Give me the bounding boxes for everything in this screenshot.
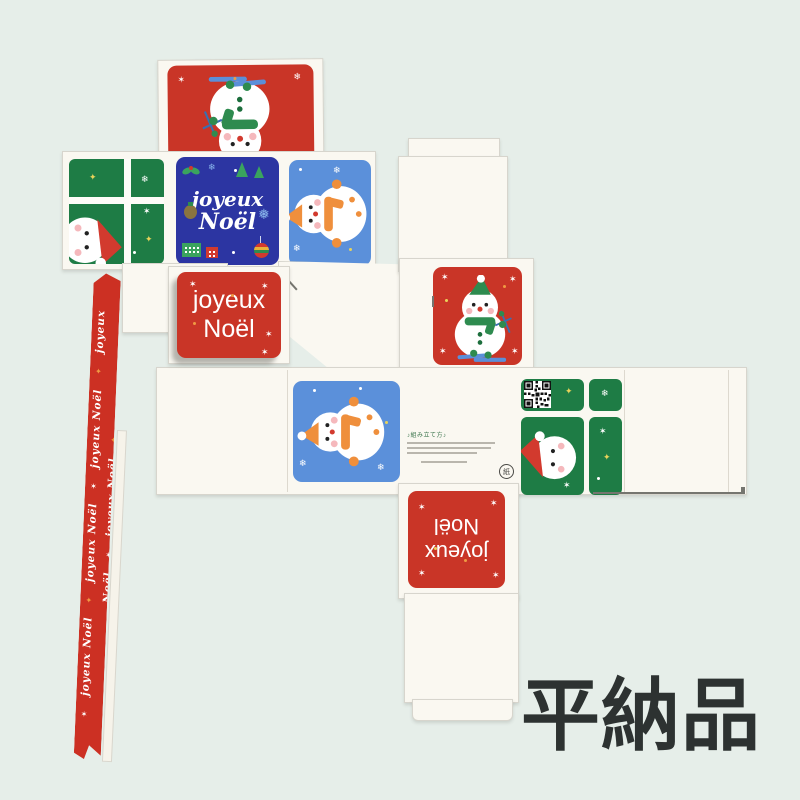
ribbon-phrase: joyeux Noël xyxy=(79,617,94,697)
sans-line1: joyeux xyxy=(425,540,489,566)
star-icon: ✦ xyxy=(565,387,573,396)
snowflake-icon: ❅ xyxy=(258,207,270,221)
assembly-instructions: ♪組み立て方♪ xyxy=(407,430,502,463)
flat-pack-label: 平納品 xyxy=(521,676,761,755)
joyeux-noel-flap-red: joyeux Noël ✶ ✶ ✶ ✶ xyxy=(177,272,281,358)
gift-cell: ❄ xyxy=(589,379,622,411)
recycle-mark-glyph: 紙 xyxy=(503,467,510,477)
left-box-front-row: ✦ ❄ ✶ ✦ joyeux Noël ❄ ❅ xyxy=(62,151,376,270)
santa-face xyxy=(69,207,127,264)
right-box-middle-band: ❄ ❄ ♪組み立て方♪ 紙 ✦ xyxy=(156,367,747,495)
recycle-mark-icon: 紙 xyxy=(499,464,514,479)
tree-icon xyxy=(236,162,248,177)
ribbon-star-icon: ✶ xyxy=(89,481,98,490)
script-line2: Noël xyxy=(199,210,256,234)
gift-cell: ✦ xyxy=(521,379,584,411)
snowflake-icon: ❄ xyxy=(333,166,341,175)
orange-dot xyxy=(231,294,234,297)
house-icon xyxy=(206,247,218,258)
yellow-dot xyxy=(385,421,388,424)
tree-icon xyxy=(254,166,264,178)
gift-panel-green-group: ✦ ❄ ✶ ✶ ✦ xyxy=(521,379,622,495)
right-box-bottom-face: joyeux Noël ✶ ✶ ✶ ✶ xyxy=(398,483,519,599)
instructions-heading-text: 組み立て方 xyxy=(411,433,444,439)
yellow-dot xyxy=(445,299,448,302)
flat-pack-photo: ✶joyeux Noël✦joyeux Noël✶joyeux Noël✦joy… xyxy=(0,0,800,800)
snowflake-icon: ❄ xyxy=(208,163,216,172)
ornament-icon xyxy=(184,205,197,219)
snowman-panel-red: ✶ ✶ ✶ ✶ xyxy=(433,267,522,365)
ribbon-phrase: joyeux Noël xyxy=(89,388,104,468)
white-dot xyxy=(93,255,96,258)
snowflake-icon: ✶ xyxy=(599,427,607,436)
cut-shadow xyxy=(593,492,745,494)
right-box-top-flap xyxy=(398,156,508,272)
joyeux-noel-panel-red-flipped: joyeux Noël ✶ ✶ ✶ ✶ xyxy=(408,491,505,588)
snowflake-icon: ✶ xyxy=(418,503,426,512)
orange-dot xyxy=(464,559,467,562)
left-box-joyeux-flap: joyeux Noël ✶ ✶ ✶ ✶ xyxy=(168,266,290,364)
snowman-panel-lightblue: ❄ ❄ xyxy=(289,160,371,266)
qr-code xyxy=(524,381,551,408)
snowflake-icon: ✶ xyxy=(511,347,519,356)
snowflake-icon: ✶ xyxy=(143,207,151,216)
sans-line2: Noël xyxy=(434,514,479,540)
fine-print-line xyxy=(407,447,491,449)
house-icon xyxy=(182,243,201,257)
white-dot xyxy=(359,387,362,390)
santa-face-art xyxy=(521,423,581,489)
gift-cell-santa: ✶ xyxy=(521,417,584,495)
snowflake-icon: ✶ xyxy=(441,273,449,282)
snowflake-icon: ❄ xyxy=(377,463,385,472)
star-icon: ✦ xyxy=(603,453,611,462)
fine-print-line xyxy=(407,452,477,454)
yellow-dot xyxy=(349,248,352,251)
right-box-top-face: ✶ ✶ ✶ ✶ xyxy=(399,258,534,373)
snowflake-icon: ❄ xyxy=(141,175,149,184)
snowflake-icon: ✶ xyxy=(261,282,269,291)
snowflake-icon: ❄ xyxy=(601,389,609,398)
white-dot xyxy=(313,389,316,392)
joyeux-noel-panel-blue: joyeux Noël ❄ ❅ xyxy=(176,157,279,265)
white-dot xyxy=(299,168,302,171)
snowflake-icon: ✶ xyxy=(418,569,426,578)
orange-dot xyxy=(233,77,236,80)
orange-snowman-art xyxy=(289,166,371,262)
snowflake-icon: ❄ xyxy=(293,72,301,81)
snowman-panel-lightblue-2: ❄ ❄ xyxy=(293,381,400,482)
snowflake-icon: ✶ xyxy=(189,280,197,289)
star-icon: ✦ xyxy=(145,235,153,244)
music-note-icon: ♪ xyxy=(443,433,447,439)
fold-line xyxy=(728,370,729,492)
white-dot xyxy=(359,200,362,203)
orange-snowman-sideways xyxy=(289,166,371,262)
snowflake-icon: ❄ xyxy=(293,244,301,253)
item-code-line xyxy=(421,461,467,463)
cut-mark xyxy=(432,296,434,307)
ribbon-star-icon: ✦ xyxy=(94,366,103,375)
gift-cell: ✶ ✦ xyxy=(589,417,622,495)
snowflake-icon: ✶ xyxy=(177,76,185,85)
orange-dot xyxy=(503,285,506,288)
sans-line1: joyeux xyxy=(193,286,265,316)
snowflake-icon: ✶ xyxy=(439,347,447,356)
snowflake-icon: ✶ xyxy=(492,571,500,580)
white-dot xyxy=(597,477,600,480)
instructions-heading: ♪組み立て方♪ xyxy=(407,430,502,439)
gift-panel-green: ✦ ❄ ✶ ✦ xyxy=(69,159,164,264)
white-dot xyxy=(133,251,136,254)
santa-face xyxy=(521,423,581,489)
cut-shadow xyxy=(741,487,745,494)
white-dot xyxy=(232,251,235,254)
script-line1: joyeux xyxy=(192,188,263,210)
skiing-snowman xyxy=(439,275,521,365)
snowflake-icon: ❄ xyxy=(299,459,307,468)
right-box-tuck-flap xyxy=(412,699,513,721)
ribbon-star-icon: ✦ xyxy=(84,595,93,604)
ribbon-phrase: joyeux Noël xyxy=(84,502,99,582)
fold-line xyxy=(624,370,625,492)
snowflake-icon: ✶ xyxy=(563,481,571,490)
yellow-dot xyxy=(434,547,437,550)
snowflake-icon: ✶ xyxy=(261,348,269,357)
holly-icon xyxy=(182,164,200,177)
santa-face-art xyxy=(69,207,127,264)
sans-line2: Noël xyxy=(203,315,254,345)
bauble-icon xyxy=(254,243,269,258)
fold-line xyxy=(287,370,288,492)
orange-dot xyxy=(193,322,196,325)
right-box-bottom-flap xyxy=(404,593,519,703)
skiing-snowman-art xyxy=(439,275,521,365)
snowflake-icon: ✶ xyxy=(490,499,498,508)
ribbon-star-icon: ✶ xyxy=(79,709,88,718)
snowflake-icon: ✶ xyxy=(265,330,273,339)
gift-ribbon-stripe xyxy=(69,197,164,204)
snowflake-icon: ✶ xyxy=(509,275,517,284)
star-icon: ✦ xyxy=(89,173,97,182)
fine-print-line xyxy=(407,442,495,444)
